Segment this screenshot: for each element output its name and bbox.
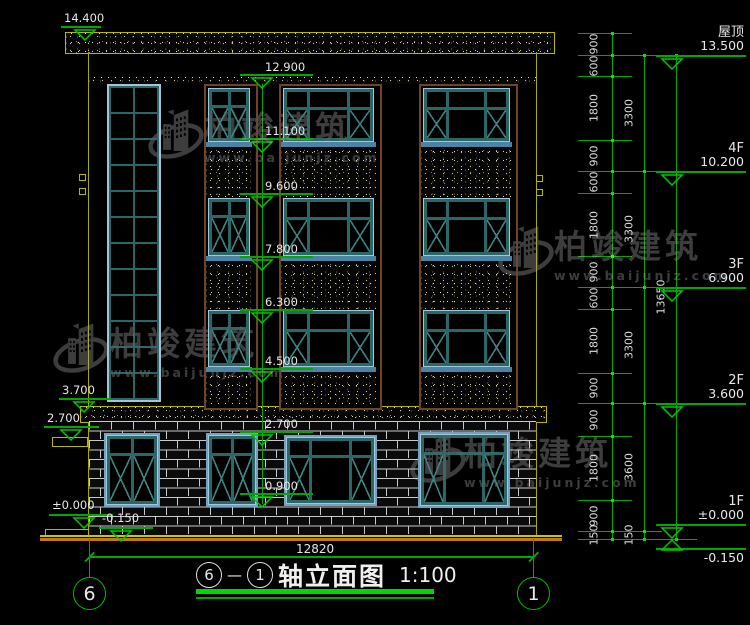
window-pane (487, 314, 506, 329)
window-pane (212, 218, 228, 252)
watermark-logo (148, 106, 204, 168)
elevation-marker-label: 14.400 (64, 13, 104, 25)
spandrel-panel (281, 367, 376, 404)
window-pane (350, 202, 370, 217)
dimension-tick-dot (611, 192, 614, 195)
dimension-line (644, 55, 645, 539)
window-pane (135, 192, 157, 216)
window-pane (310, 220, 347, 252)
window-pane (487, 332, 506, 363)
window-pane (287, 92, 307, 107)
watermark-logo (53, 320, 109, 382)
watermark-url: www.baijunjz.com (110, 367, 286, 380)
title-scale: 1:100 (399, 563, 457, 587)
title-axis-bubble-right: 1 (247, 562, 273, 588)
dimension-tick-dot (611, 372, 614, 375)
floor-level-elevation: 13.500 (686, 40, 744, 53)
elevation-marker-triangle (59, 426, 83, 445)
dimension-tick-dot (611, 54, 614, 57)
floor-level-triangle (660, 536, 684, 555)
window-pane (310, 314, 347, 329)
window-pane (111, 192, 133, 216)
axis-bubble-6: 6 (73, 577, 106, 610)
dimension-label: 600 (589, 172, 600, 193)
window-pane (449, 202, 484, 217)
floor-level-elevation: 10.200 (686, 156, 744, 169)
window-pane (110, 439, 131, 453)
elevation-marker-triangle (250, 74, 274, 93)
window-pane (231, 202, 247, 215)
window-sill (421, 367, 512, 372)
elevation-marker-label: 3.700 (62, 385, 95, 397)
window-pane (310, 202, 347, 217)
dimension-tick-dot (611, 170, 614, 173)
window-pane (350, 110, 370, 138)
window-pane (111, 114, 133, 138)
window-pane (487, 92, 506, 107)
elevation-marker-label: 9.600 (265, 181, 298, 193)
dimension-tick-dot (611, 139, 614, 142)
window-pane (427, 110, 446, 138)
window-pane (135, 270, 157, 294)
window-pane (212, 92, 228, 105)
elevation-drawing-canvas: 14.4003.7002.700±0.000-0.15012.90011.100… (0, 0, 750, 625)
elevation-marker-triangle (72, 514, 96, 533)
watermark (148, 106, 204, 171)
window-pane (427, 332, 446, 363)
window-pane (134, 439, 155, 453)
dimension-tick-dot (611, 402, 614, 405)
elevation-marker-label: 2.700 (265, 419, 298, 431)
dimension-label: 3300 (624, 99, 635, 127)
dimension-tick-dot (643, 54, 646, 57)
elevation-marker-label: 2.700 (47, 413, 80, 425)
window-pane (427, 202, 446, 217)
drain-bracket (79, 188, 86, 195)
lintel-band (89, 77, 536, 84)
floor-level-triangle (660, 55, 684, 74)
window-pane (111, 270, 133, 294)
window (106, 435, 158, 505)
dimension-tick (578, 500, 632, 501)
watermark-brand: 柏竣建筑 (110, 327, 258, 360)
floor-level-triangle (660, 403, 684, 422)
window-pane (449, 314, 484, 329)
dimension-tick-dot (611, 32, 614, 35)
watermark-brand: 柏竣建筑 (554, 230, 702, 263)
floor-level-triangle (660, 171, 684, 190)
elevation-marker-label: ±0.000 (52, 500, 95, 512)
elevation-marker-label: 12.900 (265, 62, 305, 74)
window (208, 198, 250, 256)
window-pane (290, 441, 309, 455)
window-pane (352, 458, 371, 500)
dimension-label: 600 (589, 55, 600, 76)
window-pane (135, 218, 157, 242)
dimension-tick-dot (643, 538, 646, 541)
axis-bubble-1: 1 (517, 577, 550, 610)
window-pane (449, 220, 484, 252)
dimension-tick-dot (611, 75, 614, 78)
window-pane (231, 218, 247, 252)
title-dash: — (227, 566, 242, 584)
dimension-tick-dot (643, 286, 646, 289)
spandrel-panel (206, 256, 252, 310)
dimension-tick-dot (611, 530, 614, 533)
dimension-label: 3300 (624, 331, 635, 359)
axis-number: 6 (83, 583, 95, 605)
window (423, 310, 510, 367)
elevation-marker-triangle (250, 193, 274, 212)
window-pane (111, 88, 133, 112)
window-pane (111, 166, 133, 190)
drain-bracket (536, 189, 543, 196)
total-width-dimension: 12820 (296, 543, 334, 555)
window-pane (449, 332, 484, 363)
dimension-tick-dot (611, 286, 614, 289)
title-underline-thin (196, 597, 434, 599)
title-block: 6 — 1 轴立面图 1:100 (196, 557, 457, 593)
window-pane (427, 314, 446, 329)
dimension-tick (578, 193, 632, 194)
elevation-marker-triangle (250, 431, 274, 450)
window-pane (310, 332, 347, 363)
window (208, 435, 256, 505)
window-pane (111, 140, 133, 164)
window-pane (352, 441, 371, 455)
dimension-tick (578, 33, 632, 34)
window-sill (421, 142, 512, 147)
dimension-tick-dot (643, 530, 646, 533)
window-pane (487, 202, 506, 217)
window-pane (312, 441, 348, 455)
floor-level-triangle (660, 287, 684, 306)
dimension-tick (578, 309, 632, 310)
dimension-tick-dot (611, 538, 614, 541)
title-text: 轴立面图 (278, 557, 386, 593)
watermark-url: www.baijunjz.com (554, 270, 730, 283)
dimension-label: 150 (589, 525, 600, 546)
window-pane (135, 296, 157, 320)
dimension-label: 1800 (589, 327, 600, 355)
window-pane (350, 314, 370, 329)
dimension-tick-dot (611, 499, 614, 502)
dimension-label: 900 (589, 378, 600, 399)
window-pane (111, 296, 133, 320)
watermark-logo (498, 223, 554, 285)
elevation-marker-label: 0.900 (265, 481, 298, 493)
window-pane (449, 110, 484, 138)
dimension-label: 600 (589, 288, 600, 309)
window-pane (287, 314, 307, 329)
dimension-tick (578, 140, 632, 141)
dimension-label: 1800 (589, 94, 600, 122)
floor-level-elevation: ±0.000 (686, 509, 744, 522)
window-pane (231, 92, 247, 105)
window-pane (312, 458, 348, 500)
window-pane (134, 456, 155, 501)
below-ground-elevation: -0.150 (686, 552, 744, 565)
title-underline-thick (196, 589, 434, 594)
window (423, 198, 510, 256)
watermark-url: www.baijunjz.com (204, 152, 380, 165)
axis-number: 1 (527, 583, 539, 605)
watermark-brand: 柏竣建筑 (204, 112, 352, 145)
window-pane (449, 92, 484, 107)
dimension-label: 150 (624, 525, 635, 546)
drain-bracket (536, 175, 543, 182)
dimension-tick-dot (611, 308, 614, 311)
dimension-tick-dot (643, 402, 646, 405)
spandrel-panel (421, 367, 512, 404)
window-pane (111, 218, 133, 242)
window-pane (287, 202, 307, 217)
window-pane (135, 244, 157, 268)
window-pane (111, 244, 133, 268)
dimension-tick-dot (643, 170, 646, 173)
watermark (410, 430, 466, 495)
dimension-tick (578, 76, 632, 77)
dimension-label: 900 (589, 505, 600, 526)
dimension-label: 900 (589, 409, 600, 430)
elevation-marker-triangle (109, 527, 133, 546)
window-pane (212, 202, 228, 215)
watermark-logo (410, 430, 466, 492)
watermark-brand: 柏竣建筑 (464, 437, 612, 470)
watermark (498, 223, 554, 288)
watermark (53, 320, 109, 385)
window-pane (350, 332, 370, 363)
elevation-marker-triangle (73, 26, 97, 45)
dimension-label: 900 (589, 34, 600, 55)
window-pane (427, 92, 446, 107)
elevation-marker-label: 6.300 (265, 297, 298, 309)
window-pane (212, 456, 231, 501)
window-pane (310, 92, 347, 107)
elevation-marker-triangle (250, 256, 274, 275)
dimension-label: 900 (589, 145, 600, 166)
watermark-url: www.baijunjz.com (464, 477, 640, 490)
floor-level-elevation: 3.600 (686, 388, 744, 401)
elevation-marker-triangle (250, 493, 274, 512)
window (423, 88, 510, 142)
window-pane (350, 92, 370, 107)
dimension-tick (578, 373, 632, 374)
roof-slab (65, 32, 555, 54)
title-axis-bubble-left: 6 (196, 562, 222, 588)
spandrel-panel (421, 142, 512, 198)
window-pane (350, 220, 370, 252)
elevation-marker-label: -0.150 (102, 513, 139, 525)
window-pane (110, 456, 131, 501)
elevation-marker-label: 7.800 (265, 244, 298, 256)
window-pane (427, 220, 446, 252)
window-pane (212, 439, 231, 453)
window-pane (487, 110, 506, 138)
drain-bracket (79, 174, 86, 181)
